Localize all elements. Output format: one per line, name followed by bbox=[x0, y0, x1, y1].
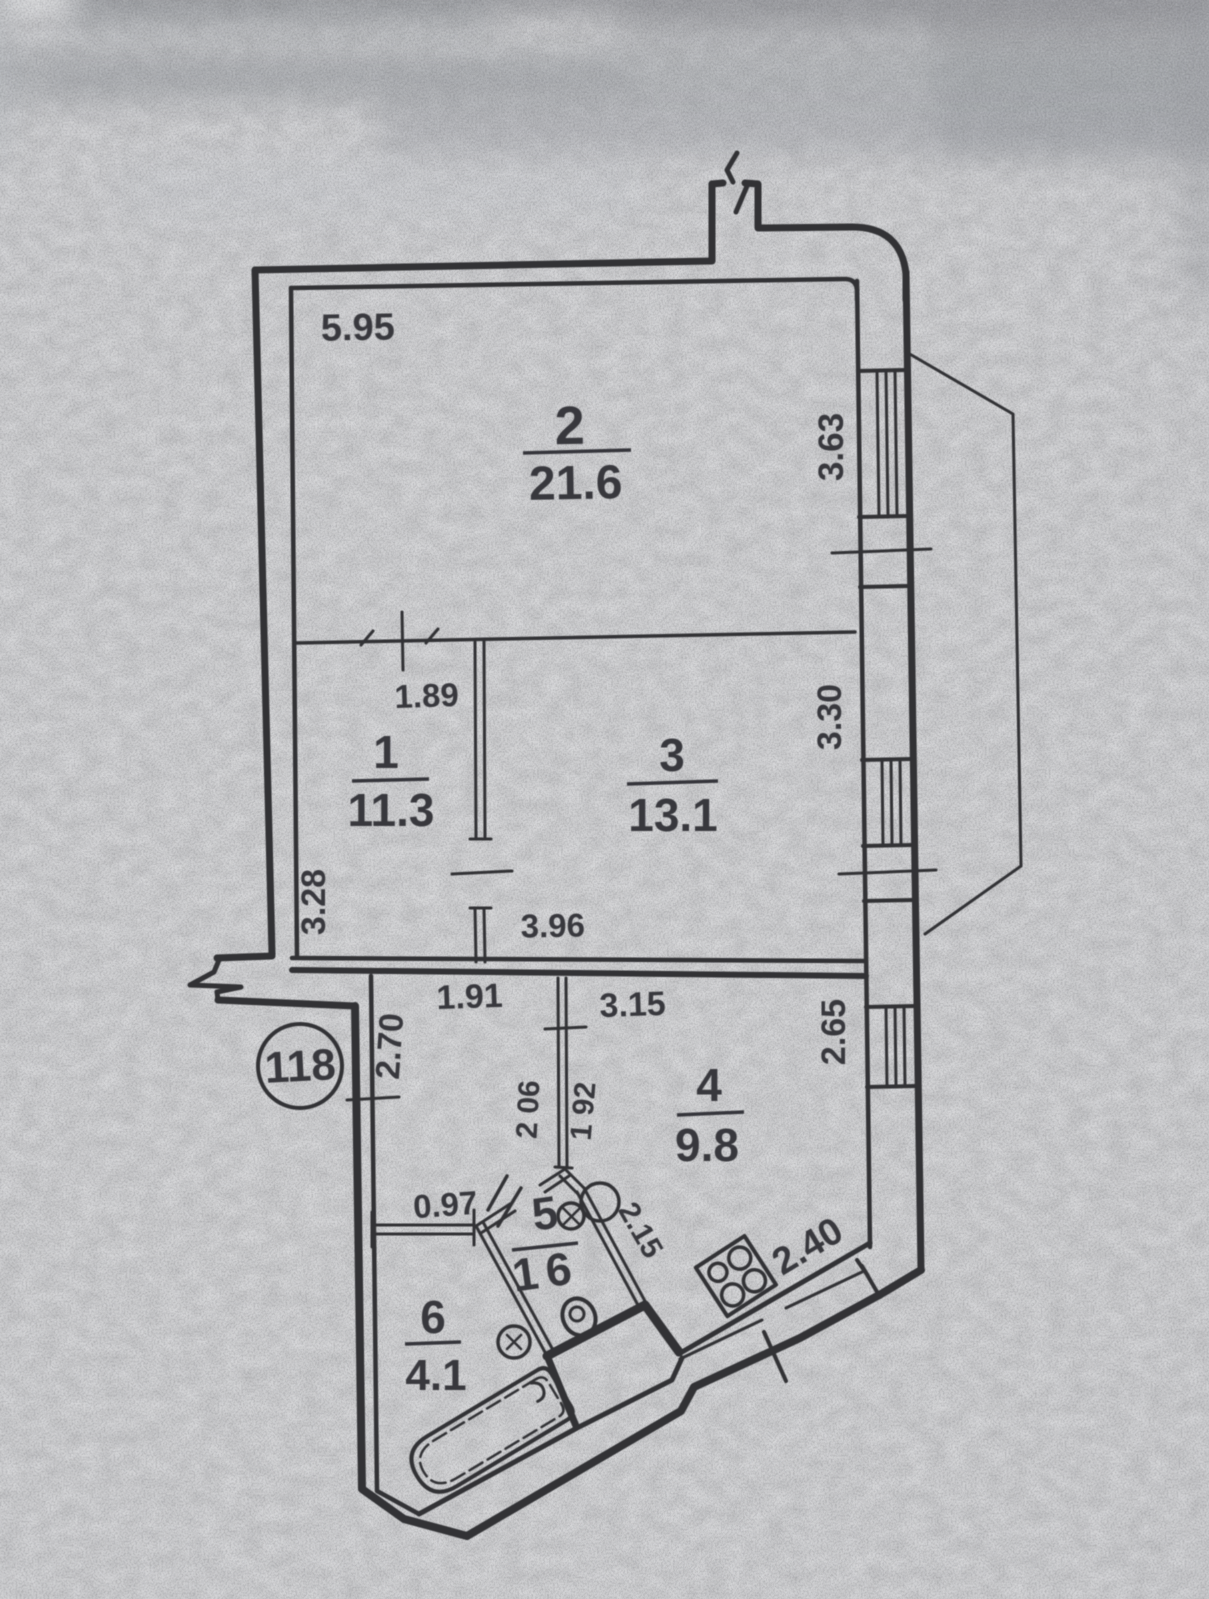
svg-text:1.89: 1.89 bbox=[394, 676, 459, 715]
svg-text:4.1: 4.1 bbox=[405, 1351, 466, 1400]
svg-text:3.96: 3.96 bbox=[520, 906, 585, 944]
svg-text:11.3: 11.3 bbox=[348, 784, 435, 836]
svg-text:13.1: 13.1 bbox=[628, 789, 718, 841]
svg-text:3.30: 3.30 bbox=[811, 684, 849, 750]
svg-text:2: 2 bbox=[554, 396, 585, 457]
svg-text:5.95: 5.95 bbox=[320, 306, 395, 349]
svg-text:6: 6 bbox=[420, 1291, 446, 1343]
svg-text:3.63: 3.63 bbox=[812, 413, 851, 481]
svg-text:1 92: 1 92 bbox=[565, 1081, 603, 1142]
svg-text:3: 3 bbox=[659, 729, 685, 781]
svg-text:2.70: 2.70 bbox=[369, 1012, 412, 1081]
svg-text:3.15: 3.15 bbox=[599, 985, 666, 1025]
svg-text:2.65: 2.65 bbox=[815, 999, 853, 1065]
svg-text:21.6: 21.6 bbox=[529, 456, 623, 511]
svg-text:2 06: 2 06 bbox=[511, 1079, 547, 1139]
svg-text:16: 16 bbox=[509, 1241, 583, 1302]
svg-text:118: 118 bbox=[264, 1040, 337, 1093]
svg-text:9.8: 9.8 bbox=[675, 1119, 739, 1171]
svg-text:3.28: 3.28 bbox=[295, 869, 333, 935]
svg-text:0.97: 0.97 bbox=[412, 1184, 479, 1225]
svg-text:1: 1 bbox=[373, 726, 399, 778]
svg-text:4: 4 bbox=[696, 1059, 722, 1111]
svg-text:1.91: 1.91 bbox=[436, 977, 503, 1017]
